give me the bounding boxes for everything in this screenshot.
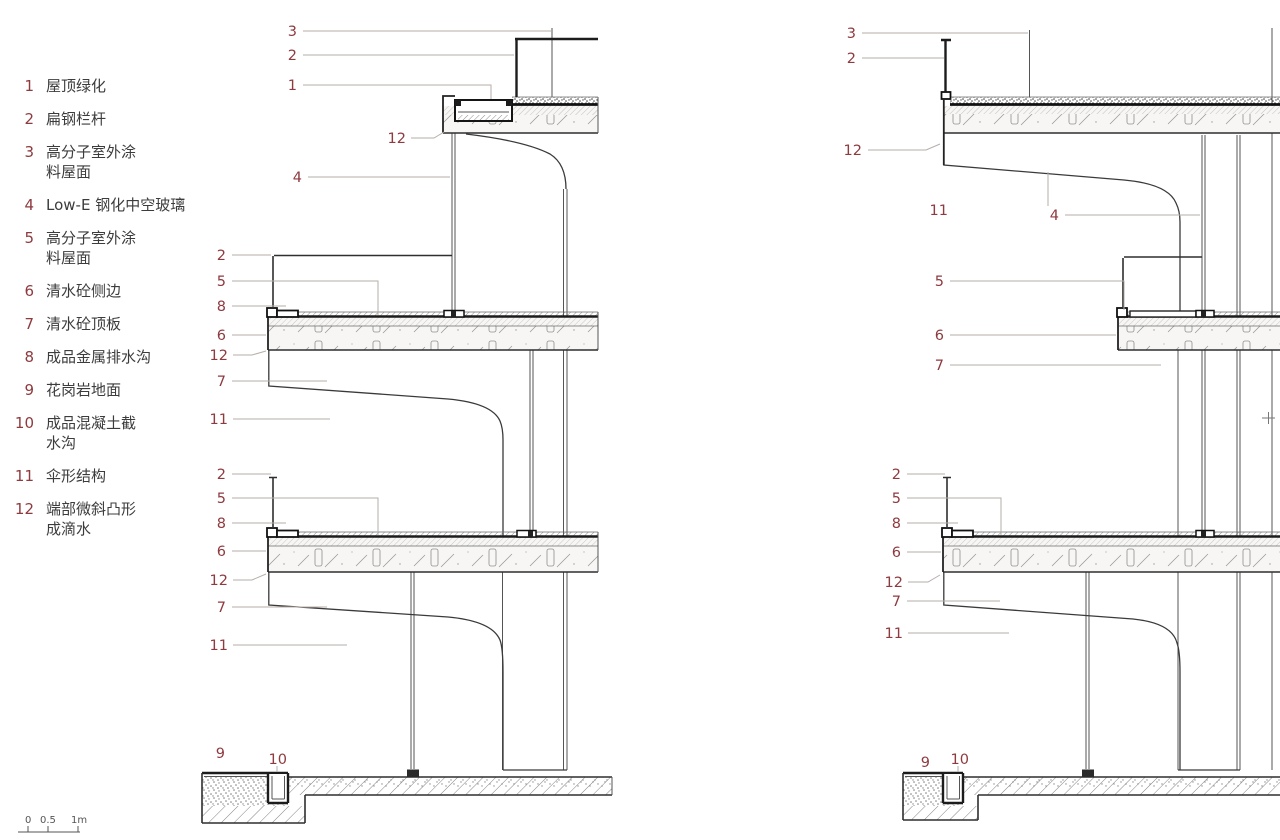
mid-slab <box>267 308 598 350</box>
legend-number: 12 <box>10 499 34 539</box>
callout-label: 10 <box>951 752 969 768</box>
ground-left <box>202 770 612 824</box>
callout-label: 11 <box>885 626 903 642</box>
scale-label-05: 0.5 <box>40 815 56 826</box>
callout-label: 8 <box>217 299 226 315</box>
concrete-gutter <box>943 773 963 803</box>
legend-label: 屋顶绿化 <box>46 76 106 96</box>
legend-item: 2扁钢栏杆 <box>10 109 210 129</box>
right-detail <box>942 92 1280 572</box>
mullion <box>411 572 414 769</box>
callout-label: 8 <box>217 516 226 532</box>
callout-label: 5 <box>892 491 901 507</box>
callouts-left: 321124258612711258612711910 <box>210 24 551 772</box>
metal-gutter <box>455 100 512 121</box>
roof-slab <box>942 92 1280 165</box>
callout-label: 11 <box>210 638 228 654</box>
callouts-right: 3212114567258612711910 <box>844 26 1200 772</box>
callout-label: 6 <box>892 545 901 561</box>
legend-number: 11 <box>10 466 34 486</box>
legend-label: 伞形结构 <box>46 466 106 486</box>
roof-slab <box>443 96 598 133</box>
flat-steel-railing <box>941 40 951 92</box>
callout-leader <box>232 498 378 535</box>
callout-label: 7 <box>217 374 226 390</box>
callout-label: 12 <box>210 573 228 589</box>
umbrella-curve-roof-left <box>466 134 566 189</box>
metal-gutter <box>277 311 298 318</box>
callout-label: 6 <box>935 328 944 344</box>
callout-label: 2 <box>288 48 297 64</box>
parapet-cap <box>942 92 951 99</box>
callout-leader <box>232 281 378 315</box>
flat-steel-railing <box>515 39 598 97</box>
legend-item: 1屋顶绿化 <box>10 76 210 96</box>
mullion-base-plate <box>407 770 419 778</box>
scale-bar: 0 0.5 1m <box>18 815 87 832</box>
glass-line <box>530 350 533 536</box>
metal-gutter <box>952 531 973 538</box>
legend-label: 清水砼侧边 <box>46 281 121 301</box>
legend-label: Low-E 钢化中空玻璃 <box>46 195 185 215</box>
callout-label: 3 <box>288 24 297 40</box>
legend-label: 端部微斜凸形 成滴水 <box>46 499 136 539</box>
metal-gutter <box>277 531 298 538</box>
legend-label: 高分子室外涂 料屋面 <box>46 228 136 268</box>
callout-leader <box>868 144 940 150</box>
drawing-stage: 0 0.5 1m 321124258612711258612711910 321… <box>0 0 1280 840</box>
legend-label: 扁钢栏杆 <box>46 109 106 129</box>
legend-label: 清水砼顶板 <box>46 314 121 334</box>
callout-leader <box>233 574 266 580</box>
callout-label: 6 <box>217 544 226 560</box>
legend-item: 10成品混凝土截 水沟 <box>10 413 210 453</box>
legend-item: 7清水砼顶板 <box>10 314 210 334</box>
umbrella-trunk-line <box>564 189 568 770</box>
legend-item: 12端部微斜凸形 成滴水 <box>10 499 210 539</box>
legend-item: 8成品金属排水沟 <box>10 347 210 367</box>
railing-base <box>267 308 277 317</box>
legend-number: 2 <box>10 109 34 129</box>
railing-base <box>942 528 952 537</box>
concrete-gutter <box>268 773 288 803</box>
legend-number: 3 <box>10 142 34 182</box>
flat-steel-railing <box>1123 257 1202 308</box>
legend-item: 6清水砼侧边 <box>10 281 210 301</box>
callout-label: 2 <box>892 467 901 483</box>
callout-leader <box>950 281 1124 310</box>
callout-label: 9 <box>921 755 930 771</box>
legend-item: 5高分子室外涂 料屋面 <box>10 228 210 268</box>
legend-number: 8 <box>10 347 34 367</box>
umbrella-curve-lower-right <box>944 572 1180 770</box>
glass-shoe <box>517 531 536 538</box>
callout-label: 4 <box>293 170 302 186</box>
callout-label: 12 <box>885 575 903 591</box>
recessed-channel <box>1130 311 1196 317</box>
legend-item: 3高分子室外涂 料屋面 <box>10 142 210 182</box>
vertical-lines <box>411 28 1272 770</box>
mullion <box>1086 572 1089 769</box>
callout-label: 2 <box>217 467 226 483</box>
callout-leader <box>303 85 491 99</box>
mullion-base-plate <box>1082 770 1094 778</box>
legend-label: 成品金属排水沟 <box>46 347 151 367</box>
legend-label: 花岗岩地面 <box>46 380 121 400</box>
legend-item: 9花岗岩地面 <box>10 380 210 400</box>
legend-item: 4Low-E 钢化中空玻璃 <box>10 195 210 215</box>
legend-number: 7 <box>10 314 34 334</box>
legend-number: 4 <box>10 195 34 215</box>
callout-label: 7 <box>217 600 226 616</box>
flat-steel-railing <box>943 477 951 528</box>
umbrella-curve-mid-left <box>269 350 503 537</box>
callout-label: 11 <box>210 412 228 428</box>
callout-label: 11 <box>930 203 948 219</box>
callout-label: 1 <box>288 78 297 94</box>
flat-steel-railing <box>273 256 452 309</box>
callout-label: 5 <box>217 491 226 507</box>
scale-label-0: 0 <box>25 815 31 826</box>
callout-label: 12 <box>388 131 406 147</box>
callout-label: 7 <box>935 358 944 374</box>
callout-label: 10 <box>269 752 287 768</box>
legend-item: 11伞形结构 <box>10 466 210 486</box>
callout-label: 8 <box>892 516 901 532</box>
green-roof-layer <box>950 97 1280 104</box>
architectural-detail-drawing: { "colors": { "accent": "#8e3a3e", "lead… <box>0 0 1280 840</box>
umbrella-curve-lower-left <box>269 572 503 770</box>
lower-slab <box>942 528 1280 572</box>
callout-label: 5 <box>217 274 226 290</box>
green-roof-layer <box>512 97 598 104</box>
mid-slab <box>1117 308 1280 350</box>
callout-label: 2 <box>217 248 226 264</box>
legend: 1屋顶绿化2扁钢栏杆3高分子室外涂 料屋面4Low-E 钢化中空玻璃5高分子室外… <box>10 76 210 552</box>
flat-steel-railing <box>269 477 277 528</box>
cross-marker <box>1262 412 1275 424</box>
callout-label: 12 <box>210 348 228 364</box>
left-detail <box>267 96 598 572</box>
railing-base <box>1117 308 1127 317</box>
callout-label: 5 <box>935 274 944 290</box>
legend-label: 高分子室外涂 料屋面 <box>46 142 136 182</box>
ground-right <box>903 770 1280 821</box>
legend-number: 5 <box>10 228 34 268</box>
railing-base <box>267 528 277 537</box>
callout-label: 6 <box>217 328 226 344</box>
legend-number: 6 <box>10 281 34 301</box>
legend-number: 10 <box>10 413 34 453</box>
legend-number: 9 <box>10 380 34 400</box>
legend-label: 成品混凝土截 水沟 <box>46 413 136 453</box>
callout-label: 2 <box>847 51 856 67</box>
callout-label: 4 <box>1050 208 1059 224</box>
callout-label: 3 <box>847 26 856 42</box>
glass-line <box>1237 135 1240 770</box>
legend-number: 1 <box>10 76 34 96</box>
callout-label: 12 <box>844 143 862 159</box>
umbrella-curve-roof-right <box>944 133 1180 317</box>
callout-label: 9 <box>216 746 225 762</box>
callout-leader <box>908 575 940 582</box>
callout-leader <box>411 132 444 138</box>
callout-leader <box>233 351 266 355</box>
lower-slab <box>267 528 598 572</box>
callout-leader <box>907 498 1001 535</box>
scale-label-1m: 1m <box>71 815 87 826</box>
callout-label: 7 <box>892 594 901 610</box>
glass-line <box>452 120 455 316</box>
